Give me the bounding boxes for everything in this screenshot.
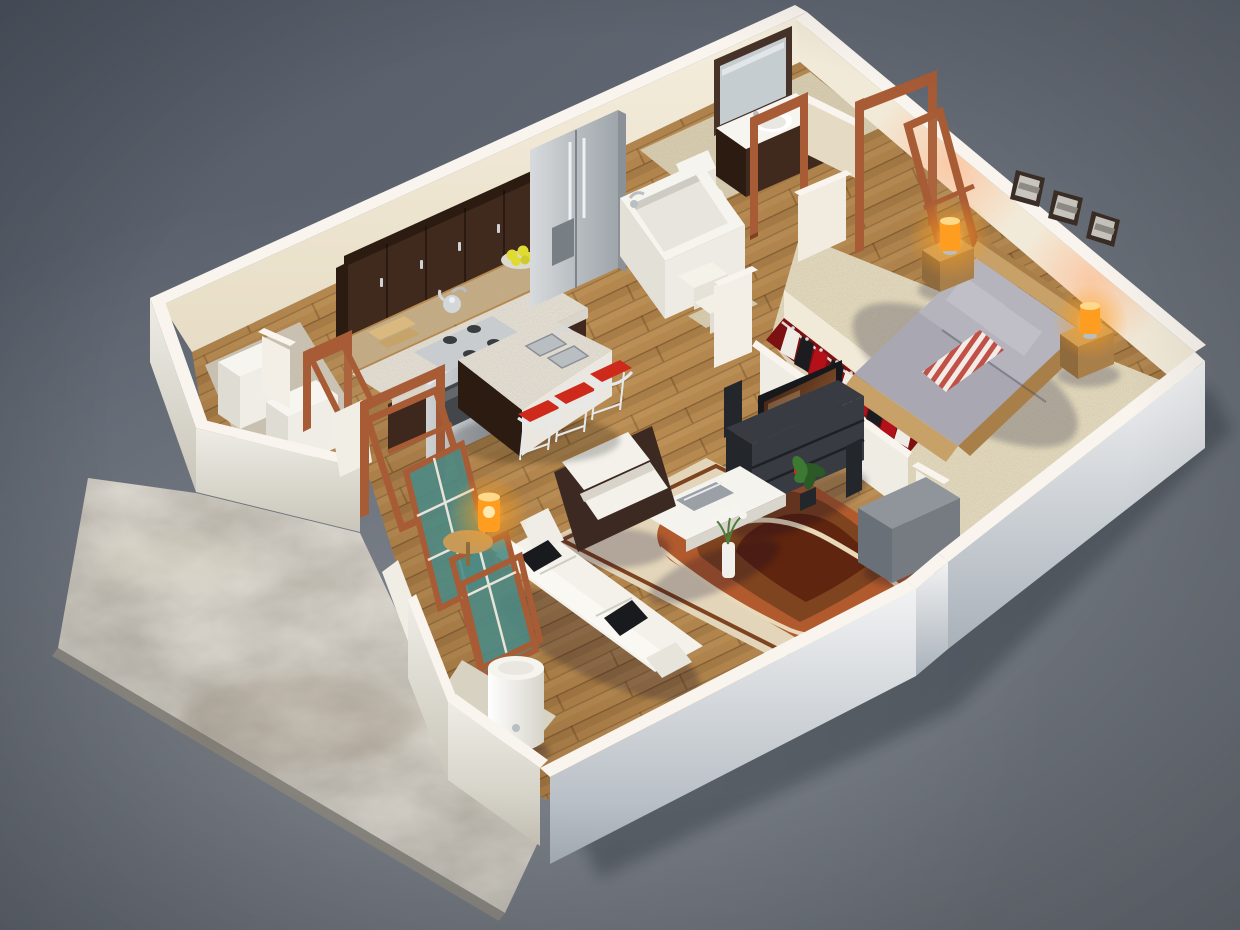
floor-plan-svg	[0, 0, 1240, 930]
vignette	[0, 0, 1240, 930]
render-canvas	[0, 0, 1240, 930]
